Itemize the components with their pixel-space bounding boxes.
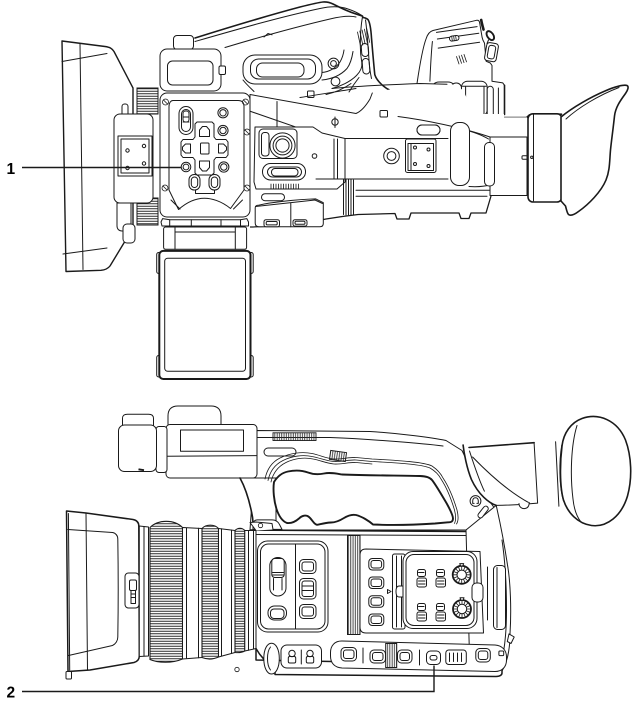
svg-text:2: 2 [7,685,16,702]
svg-text:1: 1 [7,161,16,178]
